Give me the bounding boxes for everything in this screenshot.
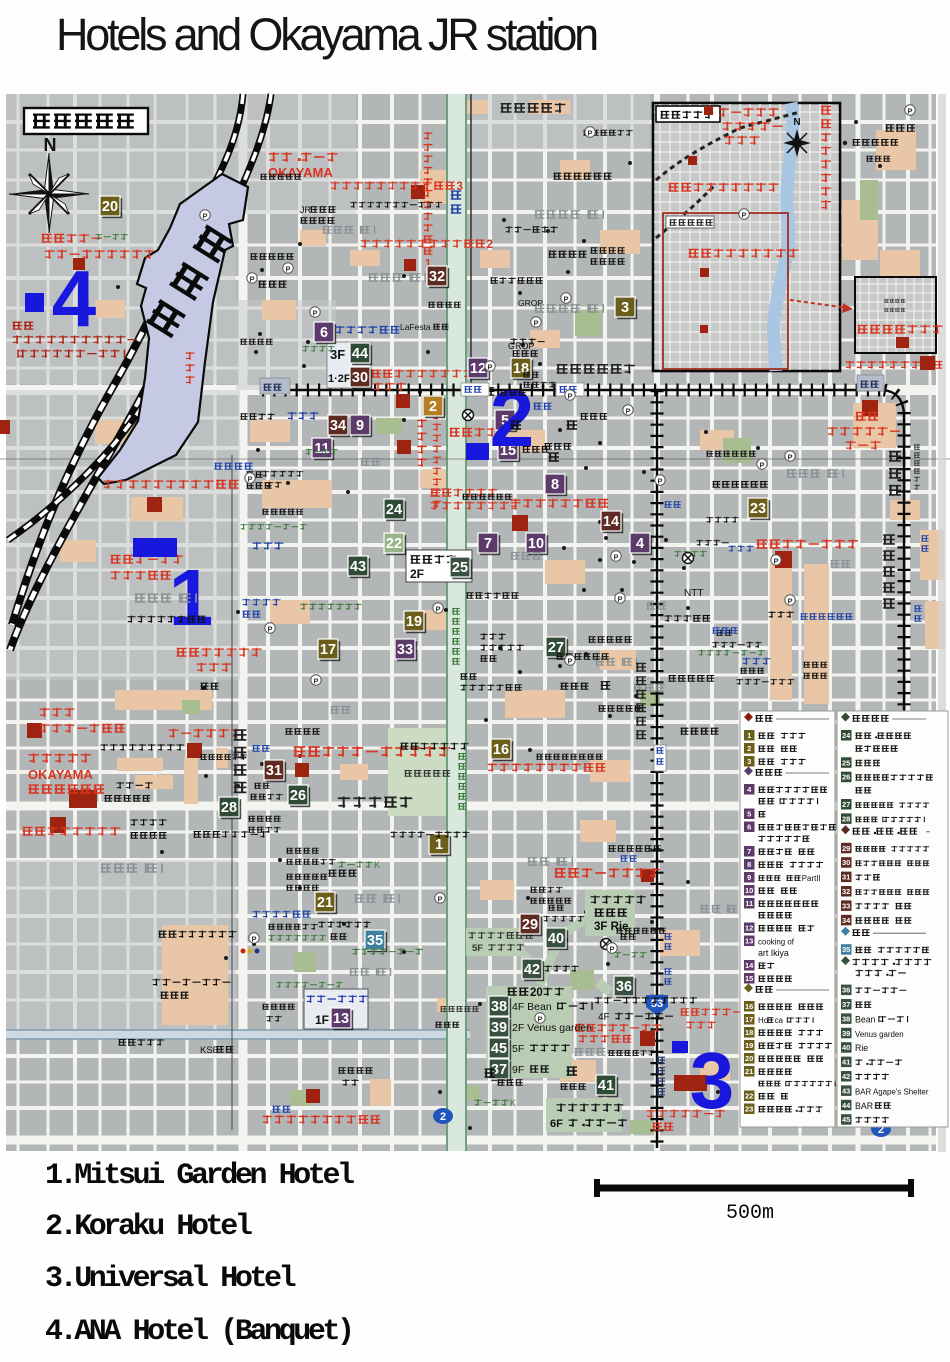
svg-text:33: 33	[842, 901, 850, 910]
svg-text:P: P	[202, 211, 207, 220]
svg-text:GROP: GROP	[508, 341, 535, 351]
svg-text:P: P	[487, 362, 492, 371]
svg-text:GROP: GROP	[518, 298, 543, 308]
svg-text:17: 17	[320, 642, 336, 658]
svg-text:23: 23	[745, 1105, 753, 1114]
svg-text:1: 1	[169, 553, 214, 642]
svg-text:28: 28	[221, 800, 237, 816]
svg-text:11: 11	[314, 441, 329, 457]
svg-text:5F: 5F	[472, 943, 483, 954]
svg-text:19: 19	[406, 614, 422, 630]
svg-text:6F: 6F	[550, 1118, 563, 1130]
svg-text:LaFesta: LaFesta	[400, 322, 431, 332]
svg-text:14: 14	[603, 514, 619, 530]
svg-text:P: P	[437, 894, 442, 903]
svg-text:19: 19	[745, 1041, 753, 1050]
svg-text:41: 41	[842, 1058, 850, 1067]
svg-text:P: P	[657, 476, 662, 485]
svg-text:41: 41	[598, 1078, 614, 1094]
svg-text:2F Venus garden: 2F Venus garden	[512, 1022, 592, 1034]
svg-text:PartII: PartII	[802, 874, 821, 883]
svg-text:7: 7	[747, 847, 751, 856]
svg-text:3: 3	[690, 1036, 735, 1125]
svg-text:KSB: KSB	[200, 1045, 219, 1056]
svg-text:P: P	[787, 596, 792, 605]
svg-text:18: 18	[745, 1028, 753, 1037]
svg-text:29: 29	[842, 844, 850, 853]
svg-text:14: 14	[745, 961, 754, 970]
svg-text:P: P	[567, 391, 572, 400]
svg-text:29: 29	[522, 917, 538, 933]
svg-text:K: K	[510, 1098, 516, 1108]
svg-text:21: 21	[317, 895, 333, 911]
svg-text:3: 3	[621, 300, 629, 316]
svg-text:4F: 4F	[598, 1012, 610, 1023]
svg-text:24: 24	[386, 502, 402, 518]
svg-text:8: 8	[551, 477, 559, 493]
svg-text:P: P	[435, 604, 440, 613]
svg-text:13: 13	[745, 937, 753, 946]
svg-text:P: P	[567, 656, 572, 665]
svg-text:Ho: Ho	[758, 1016, 769, 1025]
svg-text:16: 16	[493, 742, 509, 758]
svg-text:32: 32	[429, 269, 445, 285]
svg-text:9F: 9F	[512, 1064, 524, 1076]
svg-text:39: 39	[491, 1020, 507, 1036]
svg-text:P: P	[312, 308, 317, 317]
svg-text:Hotels and Okayama JR station: Hotels and Okayama JR station	[56, 9, 597, 60]
svg-text:P: P	[533, 318, 538, 327]
svg-text:40: 40	[548, 931, 564, 947]
svg-text:25: 25	[842, 758, 850, 767]
svg-text:7: 7	[484, 536, 492, 552]
svg-text:30: 30	[842, 858, 850, 867]
svg-text:22: 22	[745, 1092, 753, 1101]
svg-text:P: P	[251, 934, 256, 943]
svg-text:P: P	[285, 264, 290, 273]
svg-text:5F: 5F	[512, 1043, 524, 1055]
svg-text:P: P	[249, 274, 254, 283]
svg-text:8: 8	[747, 860, 751, 869]
svg-text:4: 4	[636, 536, 644, 552]
svg-text:6: 6	[320, 325, 328, 341]
svg-text:P: P	[313, 676, 318, 685]
svg-text:12: 12	[470, 361, 486, 377]
svg-text:P: P	[787, 452, 792, 461]
svg-text:6: 6	[747, 823, 751, 832]
svg-text:36: 36	[616, 979, 632, 995]
svg-text:31: 31	[266, 763, 282, 779]
svg-text:44: 44	[842, 1101, 851, 1110]
svg-text:35: 35	[367, 933, 383, 949]
svg-text:1: 1	[435, 837, 443, 853]
svg-text:P: P	[247, 474, 252, 483]
svg-text:K: K	[374, 860, 380, 870]
svg-text:36: 36	[842, 986, 850, 995]
svg-text:P: P	[625, 406, 630, 415]
svg-text:13: 13	[333, 1011, 349, 1027]
svg-text:3F Rie: 3F Rie	[594, 921, 629, 933]
svg-text:2: 2	[487, 239, 493, 251]
svg-text:21: 21	[745, 1067, 753, 1076]
svg-text:22: 22	[386, 536, 402, 552]
svg-text:P: P	[907, 106, 912, 115]
svg-text:2: 2	[440, 1111, 446, 1123]
svg-text:15: 15	[745, 974, 753, 983]
svg-text:P: P	[617, 594, 622, 603]
svg-text:art Ikiya: art Ikiya	[758, 948, 789, 958]
svg-text:40: 40	[842, 1043, 850, 1052]
svg-text:1F: 1F	[315, 1013, 329, 1027]
svg-text:23: 23	[750, 501, 766, 517]
svg-text:3F: 3F	[330, 347, 345, 362]
svg-text:53: 53	[651, 998, 663, 1010]
svg-text:P: P	[537, 1014, 542, 1023]
svg-text:N: N	[44, 135, 57, 155]
svg-text:27: 27	[842, 800, 850, 809]
svg-text:31: 31	[842, 873, 850, 882]
svg-text:12: 12	[745, 924, 753, 933]
svg-text:500m: 500m	[726, 1202, 774, 1225]
svg-text:P: P	[759, 460, 764, 469]
svg-text:28: 28	[842, 814, 850, 823]
svg-text:4.ANA Hotel (Banquet): 4.ANA Hotel (Banquet)	[45, 1315, 352, 1349]
svg-text:cooking of: cooking of	[758, 938, 795, 947]
svg-text:2.Koraku Hotel: 2.Koraku Hotel	[45, 1210, 252, 1244]
svg-text:P: P	[609, 944, 614, 953]
svg-text:1.Mitsui Garden Hotel: 1.Mitsui Garden Hotel	[45, 1159, 354, 1193]
svg-text:BAR: BAR	[855, 1101, 873, 1111]
svg-text:38: 38	[842, 1014, 850, 1023]
svg-text:34: 34	[842, 916, 851, 925]
svg-text:P: P	[613, 552, 618, 561]
svg-text:9: 9	[747, 873, 751, 882]
svg-text:37: 37	[842, 1000, 850, 1009]
svg-text:2F: 2F	[410, 567, 424, 581]
svg-text:32: 32	[842, 887, 850, 896]
svg-text:42: 42	[524, 962, 540, 978]
svg-text:P: P	[267, 624, 272, 633]
svg-text:OKAYAMA: OKAYAMA	[28, 767, 93, 782]
svg-text:ca: ca	[775, 1016, 784, 1025]
svg-text:5: 5	[747, 810, 751, 819]
svg-text:9: 9	[356, 418, 364, 434]
svg-text:26: 26	[290, 788, 306, 804]
svg-text:11: 11	[745, 899, 753, 908]
svg-text:4F Bean: 4F Bean	[512, 1001, 552, 1013]
svg-text:P: P	[773, 556, 778, 565]
svg-text:Venus garden: Venus garden	[855, 1030, 904, 1039]
svg-text:Bean: Bean	[855, 1014, 876, 1024]
svg-text:3.Universal Hotel: 3.Universal Hotel	[45, 1262, 296, 1296]
svg-text:16: 16	[745, 1002, 753, 1011]
svg-text:N: N	[793, 117, 800, 128]
svg-text:1·2F: 1·2F	[328, 373, 351, 385]
svg-text:34: 34	[330, 418, 346, 434]
svg-text:BAR Agape's Shelter: BAR Agape's Shelter	[855, 1087, 929, 1096]
svg-text:25: 25	[452, 560, 468, 576]
svg-text:38: 38	[491, 999, 507, 1015]
svg-text:NTT: NTT	[684, 588, 703, 599]
svg-text:P: P	[563, 294, 568, 303]
svg-text:17: 17	[745, 1015, 753, 1024]
svg-text:20: 20	[530, 987, 543, 999]
svg-text:P: P	[741, 210, 746, 219]
svg-text:2: 2	[747, 744, 751, 753]
svg-text:Rie: Rie	[855, 1043, 868, 1053]
svg-text:33: 33	[397, 642, 413, 658]
svg-text:44: 44	[352, 346, 368, 362]
svg-text:2: 2	[429, 399, 437, 415]
svg-text:20: 20	[745, 1054, 753, 1063]
svg-text:30: 30	[352, 370, 368, 386]
svg-text:3: 3	[747, 757, 751, 766]
svg-text:39: 39	[842, 1029, 850, 1038]
svg-text:10: 10	[745, 886, 753, 895]
svg-text:1: 1	[747, 731, 751, 740]
svg-text:43: 43	[350, 559, 366, 575]
svg-text:45: 45	[842, 1115, 850, 1124]
svg-text:20: 20	[102, 199, 118, 215]
svg-text:10: 10	[528, 536, 544, 552]
svg-text:42: 42	[842, 1072, 850, 1081]
svg-text:45: 45	[491, 1041, 507, 1057]
svg-text:JR: JR	[300, 205, 312, 215]
svg-text:24: 24	[842, 731, 851, 740]
svg-text:26: 26	[842, 773, 850, 782]
svg-text:4: 4	[52, 254, 97, 343]
svg-text:43: 43	[842, 1086, 850, 1095]
svg-text:P: P	[587, 128, 592, 137]
svg-text:35: 35	[842, 945, 850, 954]
